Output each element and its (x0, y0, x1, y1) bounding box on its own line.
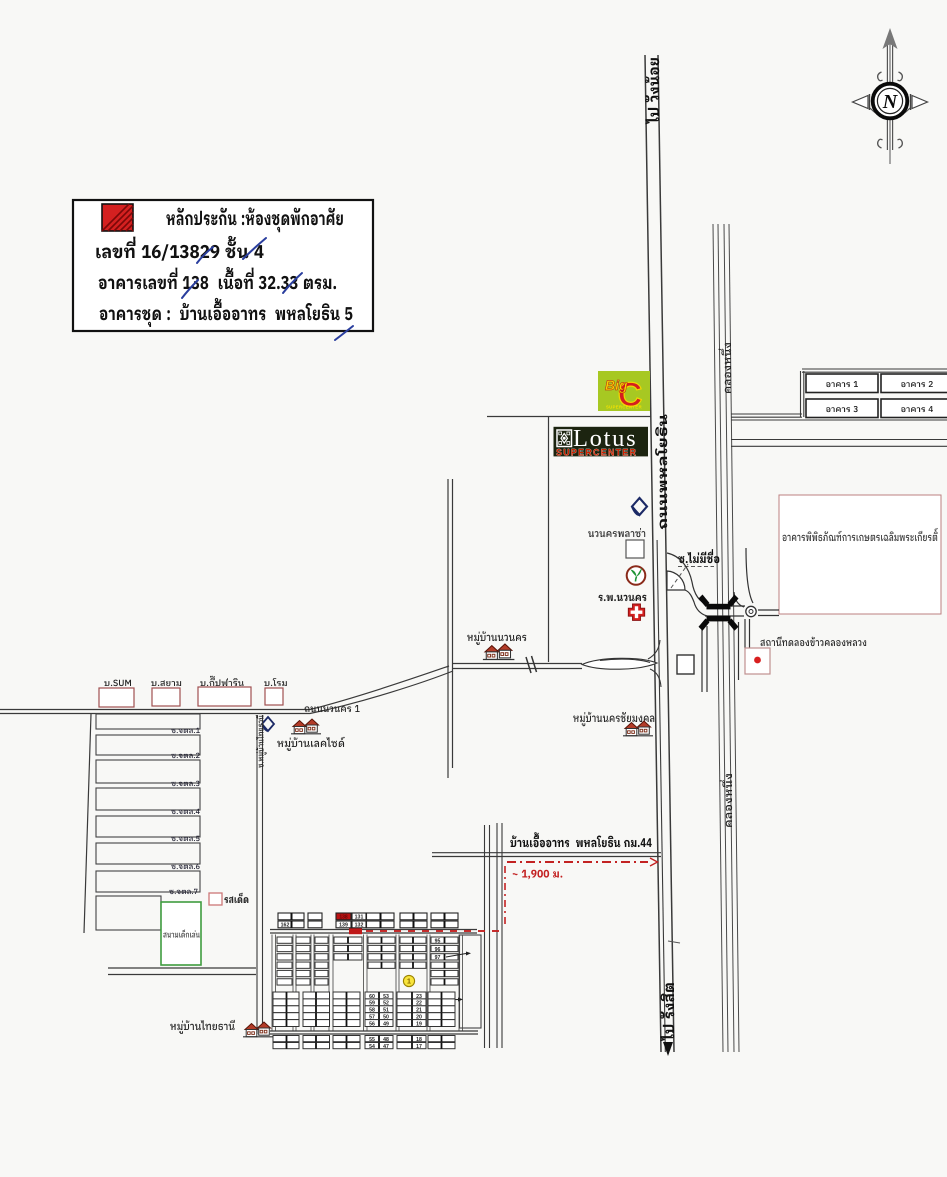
svg-text:47: 47 (383, 1044, 389, 1050)
svg-text:49: 49 (383, 1021, 389, 1027)
svg-text:95: 95 (435, 938, 441, 944)
svg-text:132: 132 (355, 923, 364, 929)
svg-text:17: 17 (416, 1044, 422, 1050)
svg-text:54: 54 (369, 1044, 375, 1050)
svg-text:56: 56 (369, 1021, 375, 1027)
svg-text:SUPERCENTER: SUPERCENTER (606, 405, 642, 410)
svg-text:139: 139 (339, 923, 348, 929)
svg-text:1: 1 (407, 977, 411, 986)
svg-text:162: 162 (281, 923, 290, 929)
svg-text:SUPERCENTER: SUPERCENTER (556, 447, 637, 457)
svg-text:Big: Big (605, 377, 628, 393)
svg-text:N: N (882, 91, 899, 113)
svg-text:19: 19 (416, 1021, 422, 1027)
svg-text:97: 97 (435, 955, 441, 961)
svg-text:96: 96 (435, 947, 441, 953)
svg-text:138: 138 (339, 915, 348, 921)
svg-text:131: 131 (355, 915, 364, 921)
